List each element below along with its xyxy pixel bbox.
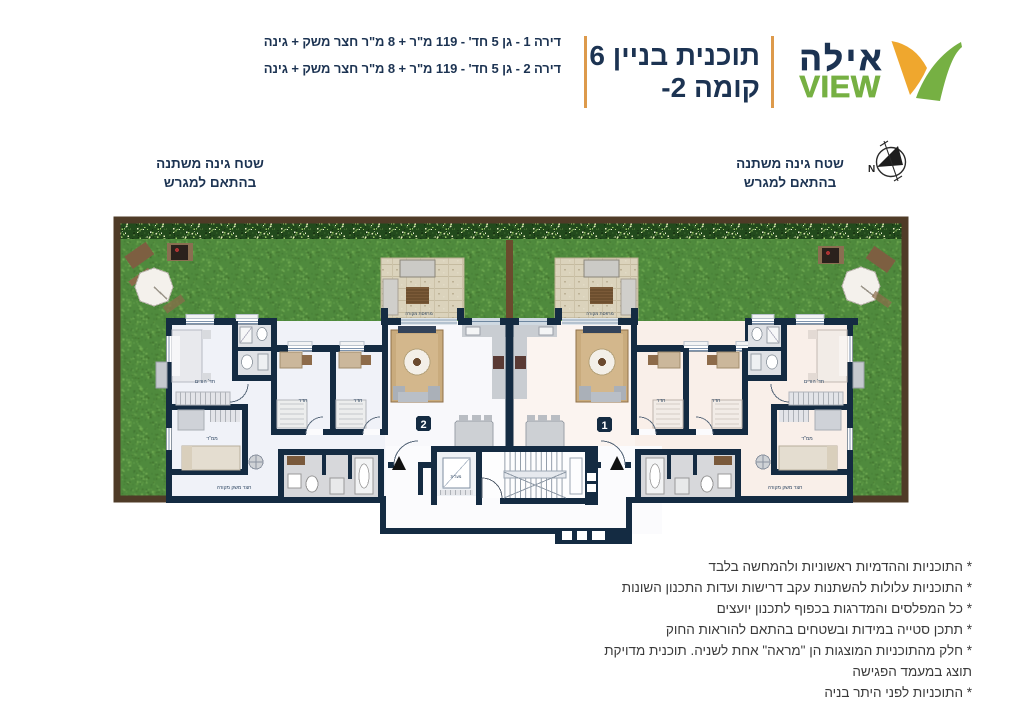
svg-text:חדר: חדר (657, 398, 666, 404)
svg-text:מרפסת מקורה: מרפסת מקורה (405, 311, 432, 316)
svg-text:2: 2 (420, 419, 426, 431)
svg-text:חדר: חדר (354, 398, 363, 404)
svg-text:חצר משק מקורה: חצר משק מקורה (768, 485, 803, 491)
svg-text:ממ"ד: ממ"ד (801, 436, 813, 442)
svg-text:1: 1 (601, 420, 607, 432)
svg-text:מרפסת מקורה: מרפסת מקורה (586, 311, 613, 316)
svg-text:חדר: חדר (712, 398, 721, 404)
svg-text:חד' הורים: חד' הורים (195, 379, 215, 385)
svg-text:מעלית: מעלית (451, 474, 462, 479)
svg-text:N: N (868, 164, 875, 175)
svg-text:ממ"ד: ממ"ד (206, 436, 218, 442)
svg-text:חד' הורים: חד' הורים (804, 379, 824, 385)
svg-text:חצר משק מקורה: חצר משק מקורה (217, 485, 252, 491)
svg-text:חדר: חדר (299, 398, 308, 404)
